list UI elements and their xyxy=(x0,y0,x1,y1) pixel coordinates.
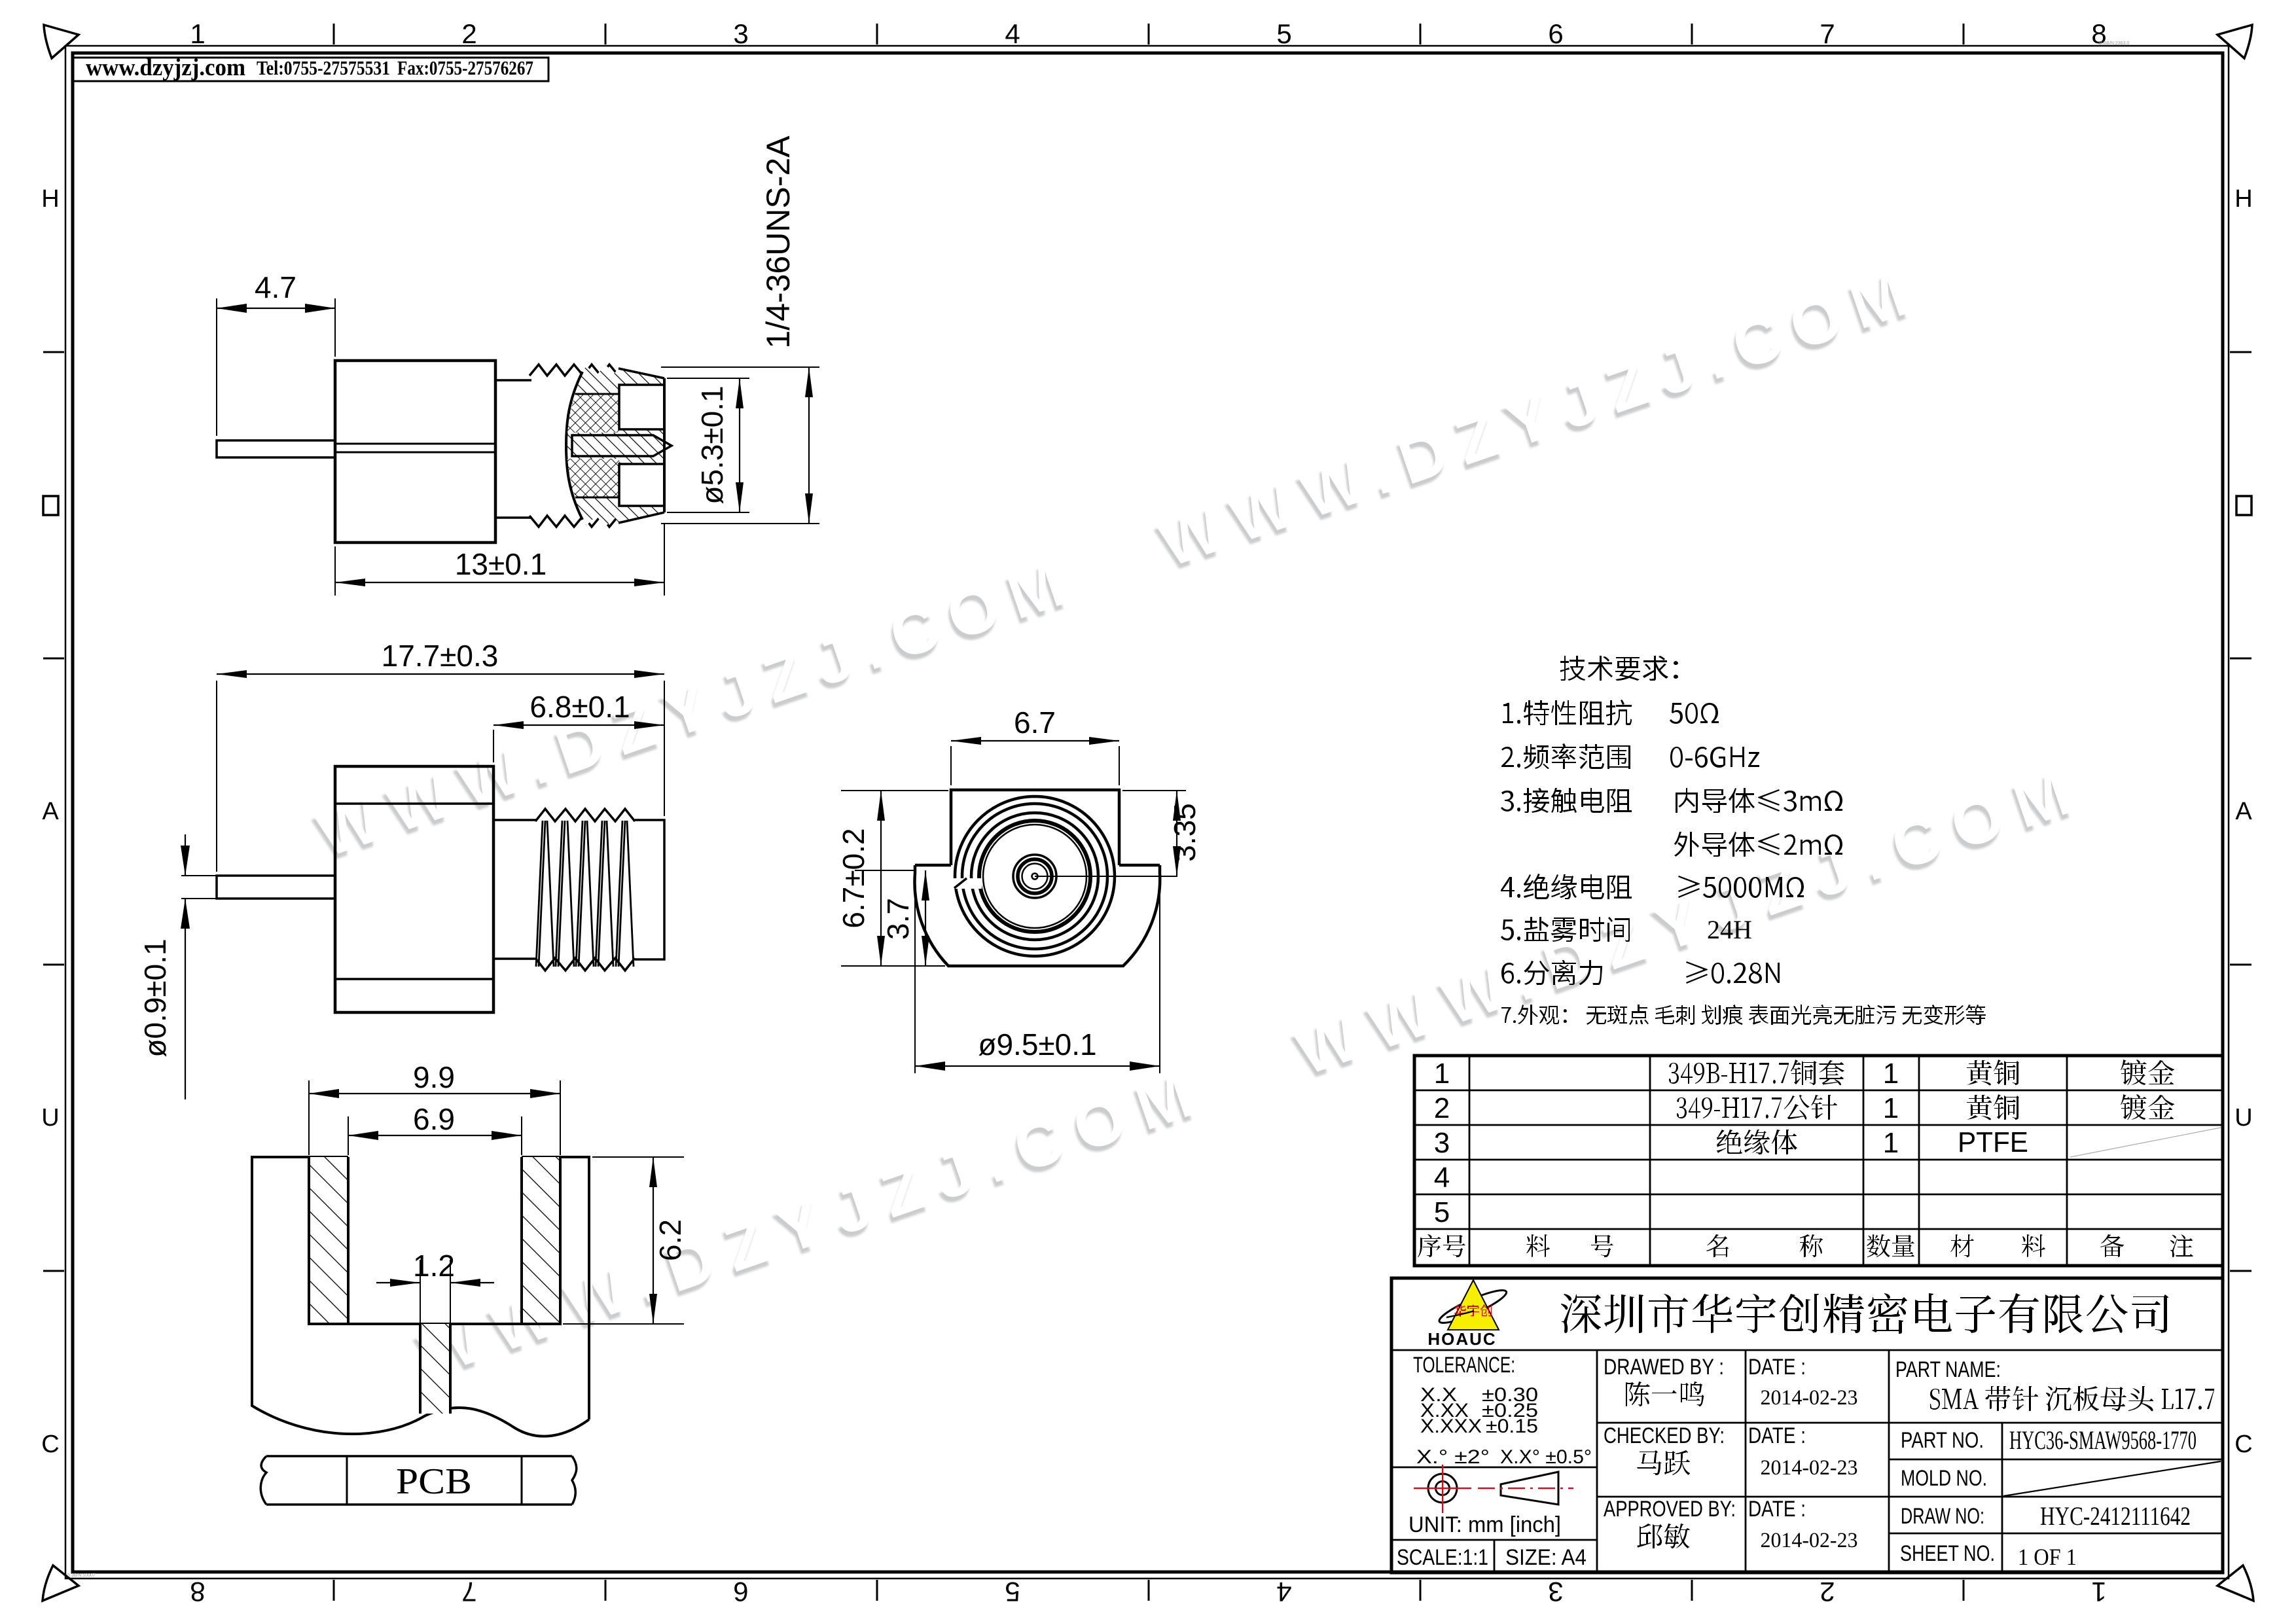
svg-text:3: 3 xyxy=(1434,1127,1450,1159)
svg-text:1/4-36UNS-2A: 1/4-36UNS-2A xyxy=(760,135,797,349)
svg-text:U: U xyxy=(41,1104,59,1132)
svg-text:DRAW NO:: DRAW NO: xyxy=(1901,1504,1984,1529)
svg-text:±0.15: ±0.15 xyxy=(1486,1416,1538,1437)
svg-text:PTFE: PTFE xyxy=(1958,1126,2028,1158)
svg-text:2: 2 xyxy=(1820,1577,1835,1607)
svg-text:SIZE: A4: SIZE: A4 xyxy=(1505,1545,1587,1570)
svg-text:2: 2 xyxy=(461,18,476,49)
svg-text:6.7: 6.7 xyxy=(1014,705,1056,740)
svg-text:HYC-2412111642: HYC-2412111642 xyxy=(2040,1501,2191,1531)
svg-text:6.8±0.1: 6.8±0.1 xyxy=(529,690,630,724)
svg-text:Tel:0755-27575531: Tel:0755-27575531 xyxy=(257,56,390,79)
svg-text:6: 6 xyxy=(733,1577,748,1607)
svg-text:7: 7 xyxy=(1820,18,1835,49)
svg-text:4: 4 xyxy=(1434,1162,1450,1194)
svg-text:A: A xyxy=(42,798,59,825)
svg-text:C: C xyxy=(41,1431,59,1458)
svg-text:2: 2 xyxy=(1434,1092,1450,1124)
svg-text:U: U xyxy=(2234,1104,2252,1132)
svg-text:13±0.1: 13±0.1 xyxy=(455,547,547,581)
svg-text:3.35: 3.35 xyxy=(1168,803,1202,862)
svg-text:17.7±0.3: 17.7±0.3 xyxy=(382,639,499,673)
svg-text:1: 1 xyxy=(1883,1058,1899,1090)
svg-text:5: 5 xyxy=(1005,1577,1020,1607)
svg-text:3: 3 xyxy=(1548,1577,1563,1607)
svg-text:APPROVED BY:: APPROVED BY: xyxy=(1604,1497,1736,1522)
svg-text:1: 1 xyxy=(190,18,205,49)
svg-text:Fax:0755-27576267: Fax:0755-27576267 xyxy=(397,56,533,79)
svg-text:UNIT: mm [inch]: UNIT: mm [inch] xyxy=(1408,1512,1561,1537)
svg-text:1 OF 1: 1 OF 1 xyxy=(2018,1544,2077,1570)
svg-text:DATE :: DATE : xyxy=(1748,1497,1806,1522)
svg-text:MOLD NO.: MOLD NO. xyxy=(1901,1466,1987,1491)
svg-text:9.9: 9.9 xyxy=(413,1060,455,1094)
svg-text:X.X° ±0.5°: X.X° ±0.5° xyxy=(1500,1446,1592,1468)
svg-text:ø5.3±0.1: ø5.3±0.1 xyxy=(695,385,729,504)
svg-text:5: 5 xyxy=(1276,18,1291,49)
svg-text:B.BB/N:2363.0: B.BB/N:2363.0 xyxy=(2099,41,2129,46)
svg-text:8: 8 xyxy=(190,1577,205,1607)
svg-text:4.7: 4.7 xyxy=(255,270,296,304)
svg-text:X.XXX: X.XXX xyxy=(1420,1416,1482,1437)
svg-text:1: 1 xyxy=(2091,1577,2106,1607)
svg-text:6: 6 xyxy=(1548,18,1563,49)
svg-text:www.dzyjzj.com: www.dzyjzj.com xyxy=(86,54,245,81)
svg-text:H: H xyxy=(2234,185,2252,213)
svg-text:4: 4 xyxy=(1005,18,1020,49)
svg-text:HYC36-SMAW9568-1770: HYC36-SMAW9568-1770 xyxy=(2009,1425,2197,1455)
svg-text:1.2: 1.2 xyxy=(413,1249,455,1283)
svg-text:5.3B/N:10007: 5.3B/N:10007 xyxy=(67,1573,96,1578)
svg-text:X.° ±2°: X.° ±2° xyxy=(1416,1446,1490,1468)
svg-text:SCALE:1:1: SCALE:1:1 xyxy=(1397,1545,1488,1570)
svg-text:C: C xyxy=(2234,1431,2252,1458)
svg-text:DATE :: DATE : xyxy=(1748,1355,1806,1380)
svg-text:1: 1 xyxy=(1883,1127,1899,1159)
svg-text:3.7: 3.7 xyxy=(881,898,915,940)
svg-text:5: 5 xyxy=(1434,1196,1450,1228)
svg-text:2014-02-23: 2014-02-23 xyxy=(1761,1529,1858,1552)
svg-text:6.9: 6.9 xyxy=(413,1102,455,1136)
svg-text:TOLERANCE:: TOLERANCE: xyxy=(1413,1353,1515,1378)
svg-text:ø9.5±0.1: ø9.5±0.1 xyxy=(978,1027,1096,1061)
svg-text:A: A xyxy=(2235,798,2252,825)
svg-text:6.7±0.2: 6.7±0.2 xyxy=(836,828,870,928)
svg-text:PCB: PCB xyxy=(396,1461,472,1502)
svg-text:7: 7 xyxy=(461,1577,476,1607)
svg-text:6.2: 6.2 xyxy=(653,1219,687,1261)
svg-text:ø0.9±0.1: ø0.9±0.1 xyxy=(138,938,172,1057)
svg-text:PART NAME:: PART NAME: xyxy=(1895,1357,2001,1382)
svg-text:3: 3 xyxy=(733,18,748,49)
svg-text:24H: 24H xyxy=(1707,915,1752,944)
svg-text:PART NO.: PART NO. xyxy=(1901,1428,1984,1453)
svg-text:DRAWED BY :: DRAWED BY : xyxy=(1604,1355,1724,1380)
svg-text:4: 4 xyxy=(1276,1577,1291,1607)
svg-text:2014-02-23: 2014-02-23 xyxy=(1761,1456,1858,1480)
svg-text:CHECKED BY:: CHECKED BY: xyxy=(1604,1423,1725,1448)
svg-text:HOAUC: HOAUC xyxy=(1427,1329,1496,1349)
svg-text:DATE :: DATE : xyxy=(1748,1423,1806,1448)
svg-text:H: H xyxy=(41,185,59,213)
svg-text:SHEET NO.: SHEET NO. xyxy=(1900,1541,1995,1566)
svg-text:1: 1 xyxy=(1883,1092,1899,1124)
svg-text:1: 1 xyxy=(1434,1058,1450,1090)
svg-text:2014-02-23: 2014-02-23 xyxy=(1761,1386,1858,1410)
